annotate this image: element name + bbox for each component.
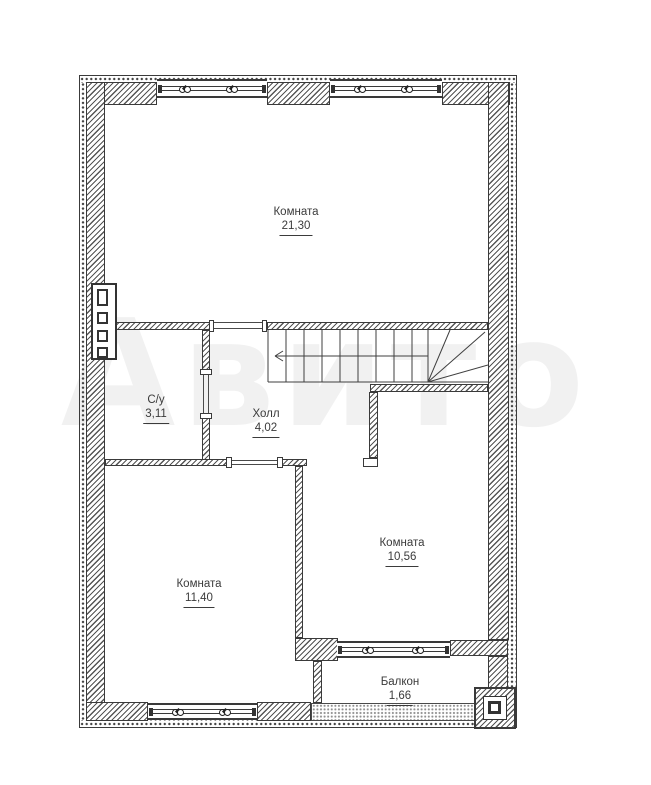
wall-left (86, 82, 105, 721)
wall-bathroom-bottom (105, 459, 227, 466)
outer-band-bottom (79, 720, 517, 728)
room-area: 4,02 (253, 421, 279, 437)
balcony-left-wall (313, 661, 322, 703)
wall-right (488, 82, 509, 640)
room-area: 11,40 (183, 591, 215, 607)
window-vent-icon (219, 708, 231, 715)
room-name: С/у (143, 393, 169, 407)
room-name: Холл (252, 407, 279, 421)
window-vent-icon (179, 85, 191, 92)
window-bottom (148, 703, 257, 720)
window-vent-icon (354, 85, 366, 92)
column-marker-mid (483, 696, 507, 720)
wall-room-divider (295, 466, 303, 638)
room-label-right: Комната 10,56 (379, 536, 424, 567)
stairs-direction-arrow (275, 351, 428, 361)
room-area: 3,11 (143, 407, 169, 423)
door-jamb (277, 457, 283, 468)
room-area: 21,30 (280, 219, 313, 235)
window-top-2 (330, 79, 442, 98)
balcony-right-wall (488, 656, 508, 690)
column-marker (474, 687, 516, 729)
room-name: Комната (273, 205, 318, 219)
window-balcony (337, 641, 450, 658)
window-post (445, 646, 449, 654)
room-label-balcony: Балкон 1,66 (381, 675, 420, 706)
wall-bottom-segment-1 (86, 702, 148, 721)
wall-bathroom-right-lower (202, 418, 210, 460)
window-vent-icon (401, 85, 413, 92)
room-label-left: Комната 11,40 (176, 577, 221, 608)
door-jamb (200, 413, 212, 419)
wall-under-stairs (370, 384, 488, 392)
winder-treads (428, 330, 488, 382)
window-glass-line (339, 647, 448, 652)
wall-bathroom-right-upper (202, 330, 210, 370)
door-jamb (226, 457, 232, 468)
balcony-right-block (450, 640, 508, 656)
window-post (437, 85, 441, 93)
window-vent-icon (226, 85, 238, 92)
opening-line (203, 374, 204, 414)
column-marker-core (488, 701, 501, 714)
opening-line (213, 322, 264, 323)
flue-duct (97, 289, 108, 306)
flue-shaft (91, 283, 117, 360)
wall-top-segment-2 (267, 82, 330, 105)
window-vent-icon (362, 646, 374, 653)
window-post (262, 85, 266, 93)
room-label-bathroom: С/у 3,11 (143, 393, 169, 424)
wall-bathroom-top (113, 322, 210, 330)
wall-hall-right (369, 392, 378, 458)
room-area: 1,66 (387, 689, 413, 705)
window-top-1 (157, 79, 267, 98)
flue-duct (97, 347, 108, 358)
wall-bottom-segment-2 (257, 702, 311, 721)
flue-duct (97, 312, 108, 324)
opening-line (208, 374, 209, 414)
wall-end-cap (363, 458, 378, 467)
opening-line (231, 460, 278, 461)
opening-line (231, 464, 278, 465)
door-jamb (200, 369, 212, 375)
balcony-corner-block (295, 638, 338, 661)
room-label-top: Комната 21,30 (273, 205, 318, 236)
window-post (158, 85, 162, 93)
window-glass-line (159, 86, 265, 91)
room-area: 10,56 (386, 550, 419, 566)
window-vent-icon (412, 646, 424, 653)
staircase (267, 329, 488, 383)
window-post (252, 708, 256, 716)
window-glass-line (332, 86, 440, 91)
room-name: Комната (379, 536, 424, 550)
flue-duct (97, 330, 108, 342)
outer-band-right (508, 83, 516, 720)
room-name: Балкон (381, 675, 420, 689)
window-post (338, 646, 342, 654)
window-post (331, 85, 335, 93)
room-name: Комната (176, 577, 221, 591)
room-label-hall: Холл 4,02 (252, 407, 279, 438)
window-post (149, 708, 153, 716)
wall-hall-bottom-segment (282, 459, 307, 466)
window-vent-icon (172, 708, 184, 715)
floor-plan: Авито (0, 0, 651, 785)
door-jamb (209, 320, 214, 332)
window-glass-line (150, 709, 255, 714)
opening-line (213, 328, 264, 329)
